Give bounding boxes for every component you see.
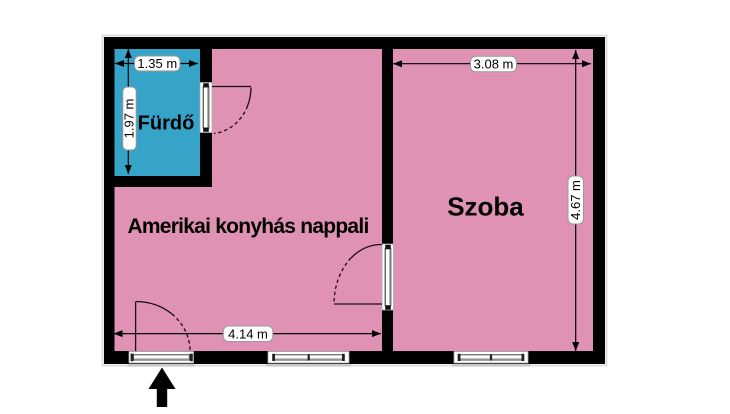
svg-text:Szoba: Szoba xyxy=(447,192,524,222)
svg-text:3.08 m: 3.08 m xyxy=(474,57,514,72)
svg-text:4.67 m: 4.67 m xyxy=(568,180,583,220)
svg-text:1.97 m: 1.97 m xyxy=(121,99,136,139)
svg-text:4.14 m: 4.14 m xyxy=(228,326,268,341)
svg-text:Fürdő: Fürdő xyxy=(138,113,195,135)
svg-text:1.35 m: 1.35 m xyxy=(137,56,177,71)
svg-text:Amerikai konyhás nappali: Amerikai konyhás nappali xyxy=(127,215,368,238)
